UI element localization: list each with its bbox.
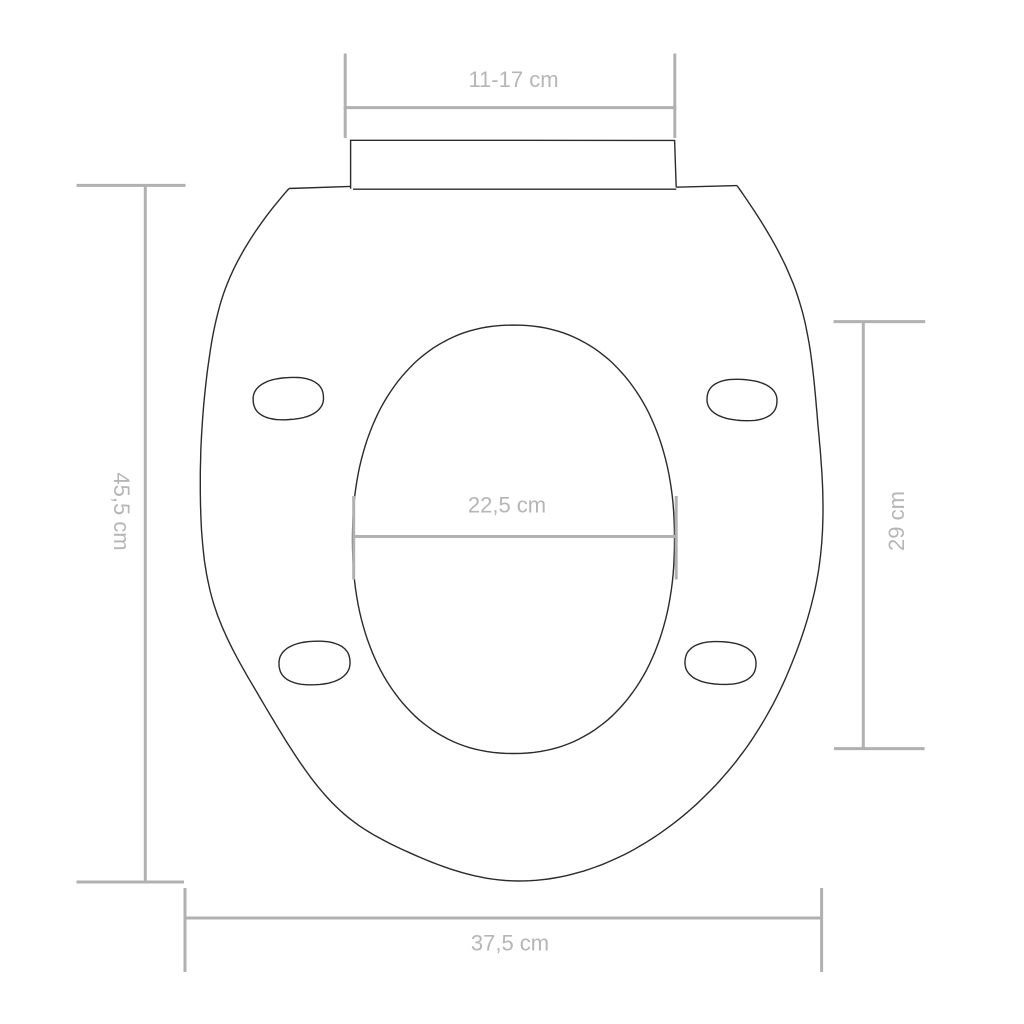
svg-text:22,5 cm: 22,5 cm — [468, 492, 546, 517]
svg-text:37,5 cm: 37,5 cm — [471, 930, 549, 955]
svg-text:11-17 cm: 11-17 cm — [468, 67, 558, 92]
svg-text:29 cm: 29 cm — [884, 491, 909, 551]
svg-text:45,5 cm: 45,5 cm — [109, 472, 134, 550]
